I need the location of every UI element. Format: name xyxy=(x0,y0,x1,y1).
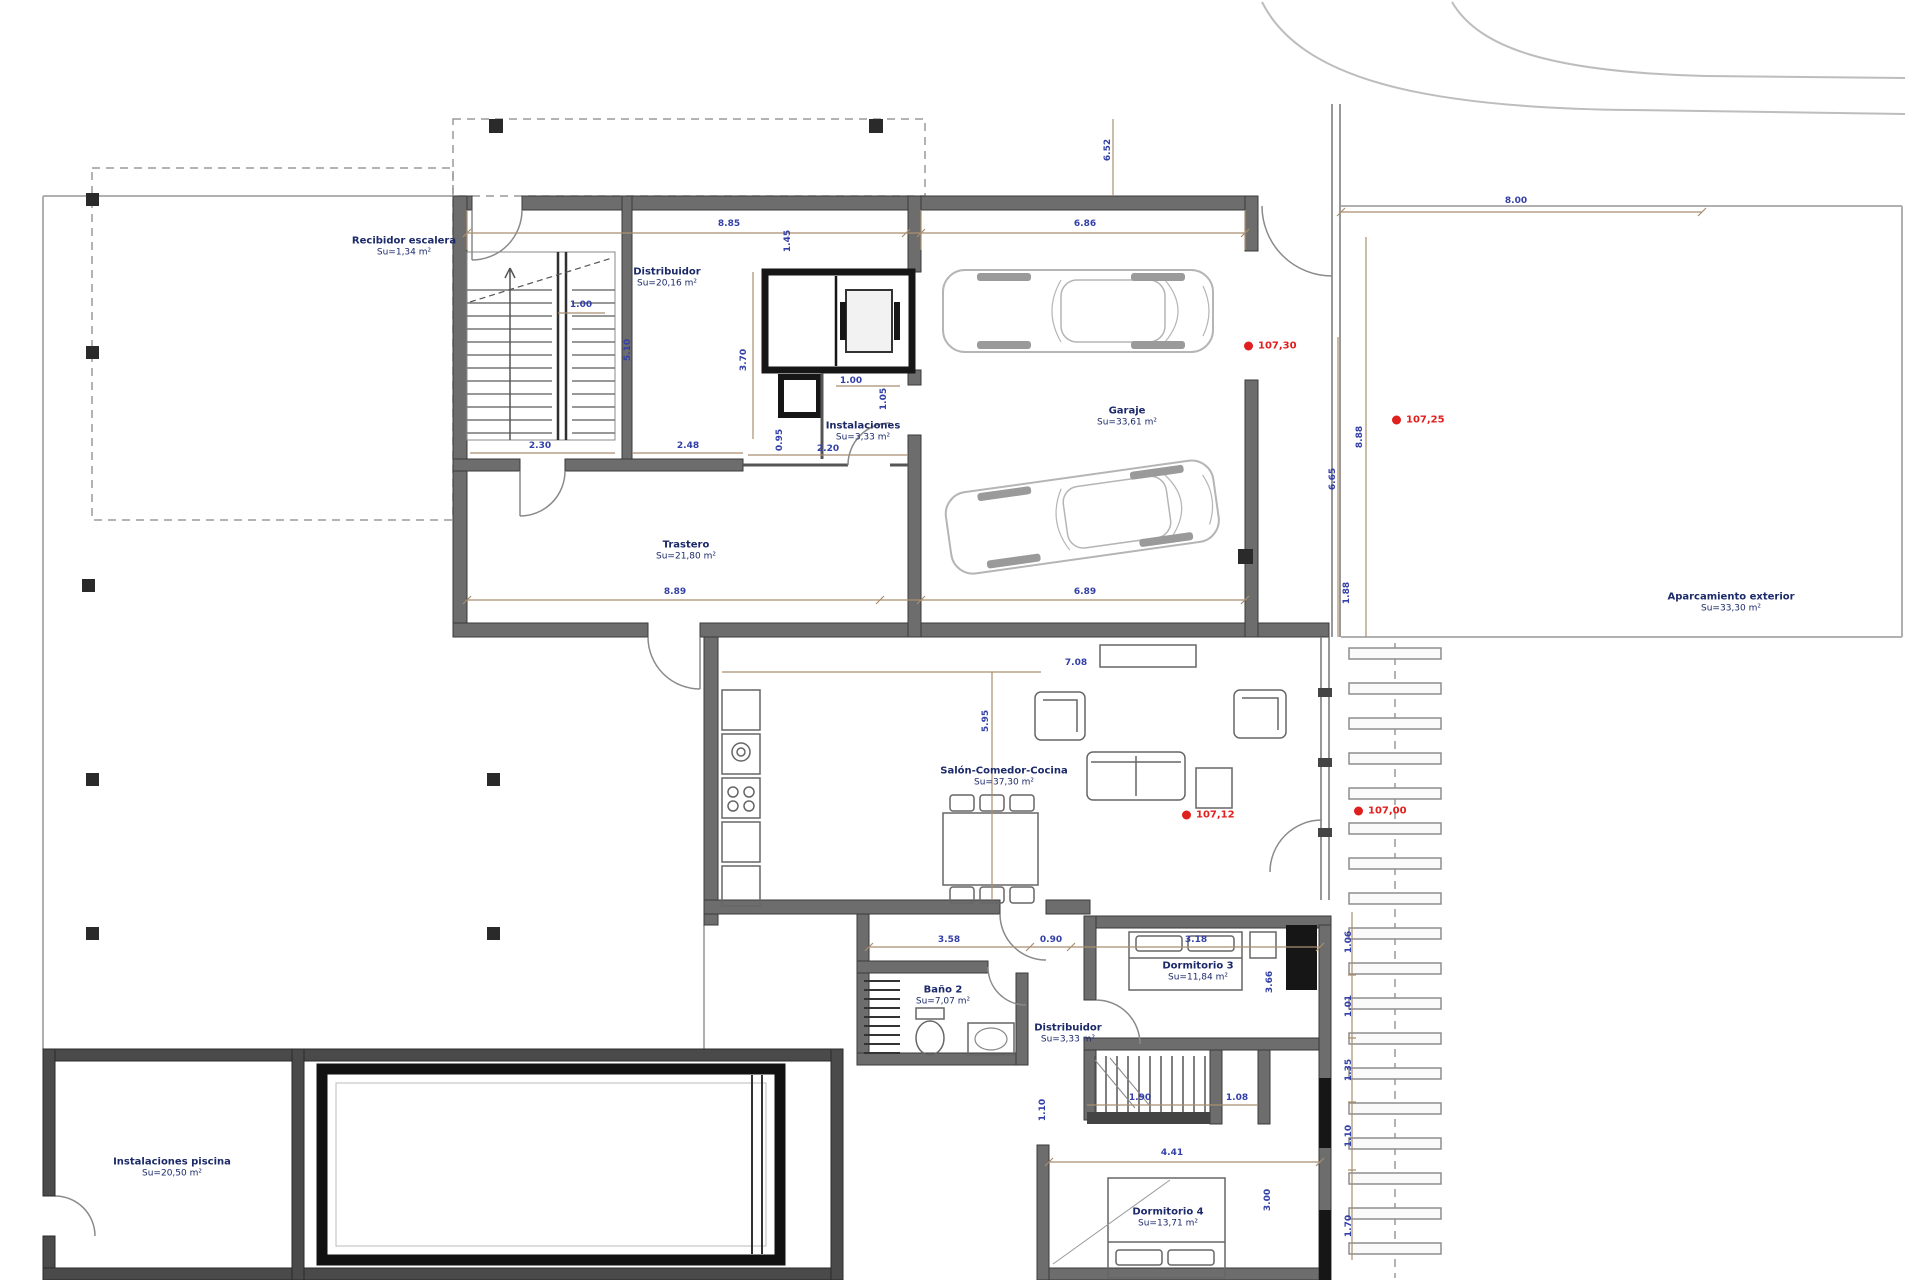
car-bottom xyxy=(943,458,1222,577)
driveway-curves xyxy=(1262,2,1905,637)
dim-stairs2-b: 1.08 xyxy=(1226,1093,1248,1103)
dim-dorm3-height: 3.66 xyxy=(1265,971,1275,993)
dim-top-right: 6.86 xyxy=(1074,219,1096,229)
level-marker-10730: 107,30 xyxy=(1244,341,1297,352)
dim-220: 2.20 xyxy=(817,444,839,454)
kitchen-units xyxy=(722,690,760,906)
room-label-distribuidor-2: Distribuidor Su=3,33 m² xyxy=(1034,1023,1102,1046)
dim-bottom-left: 8.89 xyxy=(664,587,686,597)
dim-chain-4: 1.10 xyxy=(1344,1125,1354,1147)
dim-right-665: 6.65 xyxy=(1328,468,1338,490)
dim-right-888: 8.88 xyxy=(1355,426,1365,448)
room-label-instalaciones: Instalaciones Su=3,33 m² xyxy=(826,421,901,444)
dim-salon-width: 7.08 xyxy=(1065,658,1087,668)
room-label-dormitorio4: Dormitorio 4 Su=13,71 m² xyxy=(1132,1207,1203,1230)
room-label-aparcamiento: Aparcamiento exterior Su=33,30 m² xyxy=(1667,592,1794,615)
dim-elevator-height: 3.70 xyxy=(739,349,749,371)
dim-dorm4-width: 4.41 xyxy=(1161,1148,1183,1158)
dim-bed-c: 3.18 xyxy=(1185,935,1207,945)
level-marker-10712: 107,12 xyxy=(1182,810,1235,821)
elevator xyxy=(765,272,912,415)
floor-plan-linework xyxy=(0,0,1920,1280)
dim-bed-a: 3.58 xyxy=(938,935,960,945)
dim-stair-height: 5.10 xyxy=(623,339,633,361)
level-dot-icon xyxy=(1392,416,1401,425)
car-top xyxy=(943,270,1213,352)
column-markers xyxy=(82,119,1253,940)
room-label-garaje: Garaje Su=33,61 m² xyxy=(1097,406,1157,429)
level-dot-icon xyxy=(1182,811,1191,820)
dim-dorm4-height: 3.00 xyxy=(1263,1189,1273,1211)
dim-chain-5: 1.70 xyxy=(1344,1215,1354,1237)
upper-block-walls xyxy=(453,196,1329,637)
dim-v105: 1.05 xyxy=(879,388,889,410)
living-glazing xyxy=(1318,637,1332,900)
secondary-stairs xyxy=(1087,1056,1210,1124)
dim-stair-width: 1.00 xyxy=(570,300,592,310)
dim-chain-2: 1.01 xyxy=(1344,995,1354,1017)
dim-salon-height: 5.95 xyxy=(981,710,991,732)
swimming-pool xyxy=(322,1069,780,1260)
room-label-salon: Salón-Comedor-Cocina Su=37,30 m² xyxy=(940,766,1067,789)
dim-right-188: 1.88 xyxy=(1342,582,1352,604)
dim-bottom-right: 6.89 xyxy=(1074,587,1096,597)
dim-v145: 1.45 xyxy=(783,230,793,252)
main-stairs xyxy=(467,252,615,440)
dim-driveway: 8.00 xyxy=(1505,196,1527,206)
room-label-bano2: Baño 2 Su=7,07 m² xyxy=(916,985,970,1008)
dim-gate: 6.52 xyxy=(1103,139,1113,161)
dim-top-left: 8.85 xyxy=(718,219,740,229)
level-dot-icon xyxy=(1244,342,1253,351)
dim-v095: 0.95 xyxy=(775,429,785,451)
dim-chain-3: 1.35 xyxy=(1344,1059,1354,1081)
dim-stairs2-a: 1.90 xyxy=(1129,1093,1151,1103)
room-label-recibidor: Recibidor escalera Su=1,34 m² xyxy=(352,236,456,259)
room-label-dormitorio3: Dormitorio 3 Su=11,84 m² xyxy=(1162,961,1233,984)
dim-230: 2.30 xyxy=(529,441,551,451)
dim-chain-1: 1.06 xyxy=(1344,931,1354,953)
dim-bed-b: 0.90 xyxy=(1040,935,1062,945)
dim-dorm4-left: 1.10 xyxy=(1038,1099,1048,1121)
level-marker-10700: 107,00 xyxy=(1354,806,1407,817)
room-label-trastero: Trastero Su=21,80 m² xyxy=(656,540,716,563)
level-marker-10725: 107,25 xyxy=(1392,415,1445,426)
dim-elevator-width: 1.00 xyxy=(840,376,862,386)
room-label-distribuidor-1: Distribuidor Su=20,16 m² xyxy=(633,267,701,290)
dim-248: 2.48 xyxy=(677,441,699,451)
floor-plan: Recibidor escalera Su=1,34 m² Distribuid… xyxy=(0,0,1920,1280)
level-dot-icon xyxy=(1354,807,1363,816)
room-label-instalaciones-piscina: Instalaciones piscina Su=20,50 m² xyxy=(113,1157,231,1180)
